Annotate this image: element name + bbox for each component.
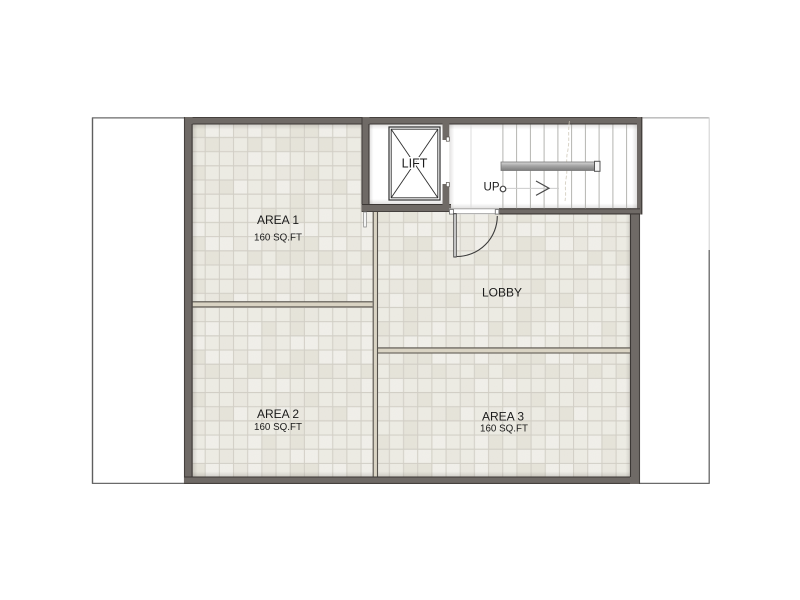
svg-text:160 SQ.FT: 160 SQ.FT [480,424,528,435]
svg-text:AREA 2: AREA 2 [257,407,299,421]
svg-text:LIFT: LIFT [402,157,428,171]
svg-text:160 SQ.FT: 160 SQ.FT [254,422,302,433]
svg-text:LOBBY: LOBBY [482,286,522,300]
svg-text:160 SQ.FT: 160 SQ.FT [254,233,302,244]
svg-text:AREA 1: AREA 1 [257,213,299,227]
svg-text:AREA 3: AREA 3 [482,410,524,424]
svg-text:UP: UP [484,182,500,194]
